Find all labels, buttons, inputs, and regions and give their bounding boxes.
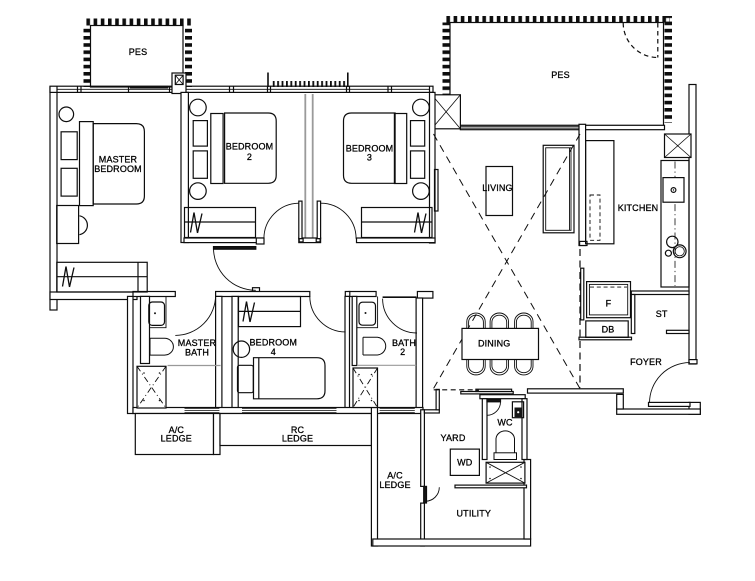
- svg-text:3: 3: [367, 153, 372, 163]
- svg-text:WD: WD: [457, 458, 473, 468]
- svg-text:DB: DB: [602, 325, 615, 335]
- svg-text:PES: PES: [551, 70, 569, 80]
- svg-text:LEDGE: LEDGE: [161, 434, 192, 444]
- svg-text:BEDROOM: BEDROOM: [226, 142, 274, 152]
- svg-text:ST: ST: [656, 309, 668, 319]
- svg-text:LEDGE: LEDGE: [282, 434, 313, 444]
- svg-text:DINING: DINING: [478, 339, 510, 349]
- svg-text:MASTER: MASTER: [99, 155, 138, 165]
- svg-text:BEDROOM: BEDROOM: [250, 338, 298, 348]
- svg-text:BATH: BATH: [185, 348, 209, 358]
- svg-text:PES: PES: [129, 47, 147, 57]
- svg-text:LIVING: LIVING: [482, 183, 512, 193]
- svg-text:F: F: [606, 299, 612, 309]
- svg-text:A/C: A/C: [387, 471, 403, 481]
- svg-text:4: 4: [271, 347, 276, 357]
- svg-text:LEDGE: LEDGE: [379, 480, 410, 490]
- svg-text:BEDROOM: BEDROOM: [94, 164, 142, 174]
- svg-text:WC: WC: [497, 418, 513, 428]
- svg-text:KITCHEN: KITCHEN: [618, 203, 659, 213]
- svg-text:UTILITY: UTILITY: [457, 509, 492, 519]
- svg-text:2: 2: [400, 347, 405, 357]
- svg-text:FOYER: FOYER: [630, 357, 662, 367]
- svg-text:2: 2: [247, 152, 252, 162]
- svg-text:YARD: YARD: [441, 433, 466, 443]
